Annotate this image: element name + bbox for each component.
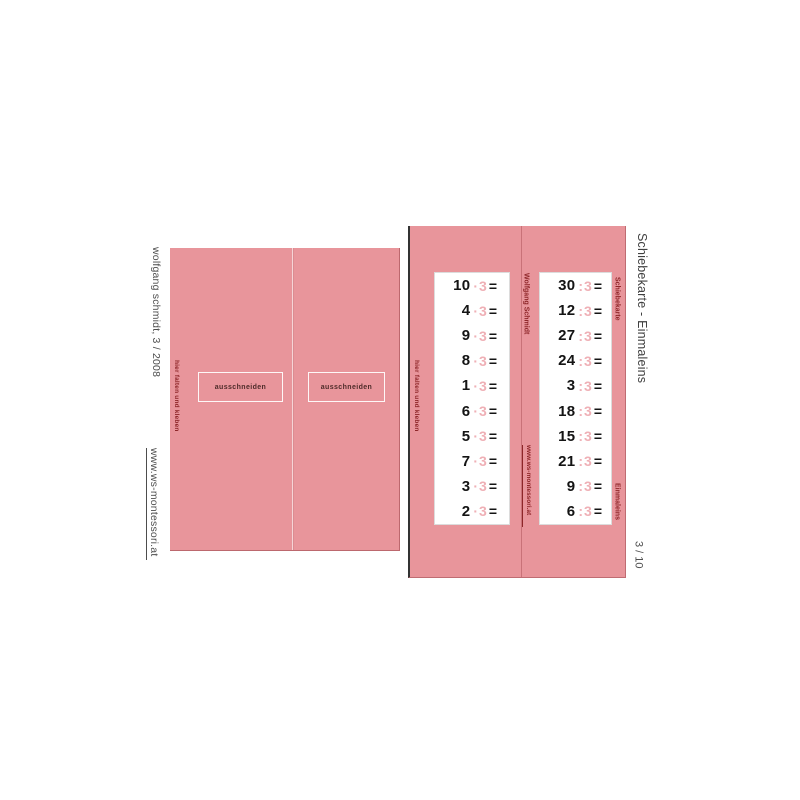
fold-line: [292, 248, 293, 550]
problem-row: 15:3=: [540, 424, 611, 449]
equals-sign: =: [594, 428, 602, 444]
operator-and-operand: ·3: [473, 278, 487, 294]
page-title: Schiebekarte - Einmaleins: [635, 233, 648, 413]
operator-and-operand: :3: [578, 403, 592, 419]
equals-sign: =: [489, 503, 497, 519]
problem-row: 9:3=: [540, 474, 611, 499]
equals-sign: =: [489, 278, 497, 294]
equals-sign: =: [489, 453, 497, 469]
multiplicand: 6: [462, 403, 471, 420]
operator-and-operand: ·3: [473, 428, 487, 444]
problem-row: 24:3=: [540, 348, 611, 373]
cut-out-box: ausschneiden: [198, 372, 283, 402]
problem-row: 27:3=: [540, 323, 611, 348]
multiplicand: 9: [462, 327, 471, 344]
author-credit: wolfgang schmidt, 3 / 2008: [150, 247, 161, 377]
cut-out-box: ausschneiden: [308, 372, 385, 402]
multiplicand: 2: [462, 503, 471, 520]
equals-sign: =: [594, 303, 602, 319]
equals-sign: =: [594, 503, 602, 519]
operator-and-operand: ·3: [473, 453, 487, 469]
equals-sign: =: [594, 378, 602, 394]
problem-row: 3:3=: [540, 373, 611, 398]
website-link: www.ws-montessori.at: [146, 448, 159, 560]
problem-row: 12:3=: [540, 298, 611, 323]
operator-and-operand: :3: [578, 428, 592, 444]
operator-and-operand: ·3: [473, 503, 487, 519]
operator-and-operand: ·3: [473, 353, 487, 369]
dividend: 3: [567, 377, 576, 394]
operator-and-operand: :3: [578, 378, 592, 394]
multiplication-column: 10·3=4·3=9·3=8·3=1·3=6·3=5·3=7·3=3·3=2·3…: [434, 272, 510, 525]
fold-panel-right: hier falten und kleben 10·3=4·3=9·3=8·3=…: [408, 226, 626, 578]
operator-and-operand: :3: [578, 278, 592, 294]
page-number: 3 / 10: [632, 541, 644, 575]
dividend: 27: [558, 327, 575, 344]
problem-row: 7·3=: [435, 449, 509, 474]
fold-panel-left: hier falten und kleben ausschneiden auss…: [170, 248, 400, 551]
equals-sign: =: [489, 353, 497, 369]
dividend: 18: [558, 403, 575, 420]
multiplicand: 3: [462, 478, 471, 495]
series-label: Schiebekarte: [613, 277, 620, 325]
equals-sign: =: [489, 403, 497, 419]
dividend: 9: [567, 478, 576, 495]
equals-sign: =: [594, 403, 602, 419]
operator-and-operand: :3: [578, 453, 592, 469]
problem-row: 30:3=: [540, 273, 611, 298]
problem-row: 8·3=: [435, 348, 509, 373]
dividend: 30: [558, 277, 575, 294]
equals-sign: =: [489, 428, 497, 444]
equals-sign: =: [594, 328, 602, 344]
problem-row: 2·3=: [435, 499, 509, 524]
cut-out-label: ausschneiden: [215, 384, 266, 391]
equals-sign: =: [489, 328, 497, 344]
scanned-worksheet-page: { "document": { "side_title": "Schiebeka…: [0, 0, 800, 800]
operator-and-operand: :3: [578, 478, 592, 494]
problem-row: 3·3=: [435, 474, 509, 499]
operator-and-operand: :3: [578, 328, 592, 344]
topic-label: Einmaleins: [613, 483, 620, 528]
problem-row: 4·3=: [435, 298, 509, 323]
problem-row: 18:3=: [540, 399, 611, 424]
multiplicand: 8: [462, 352, 471, 369]
equals-sign: =: [594, 478, 602, 494]
multiplicand: 1: [462, 377, 471, 394]
division-column: 30:3=12:3=27:3=24:3=3:3=18:3=15:3=21:3=9…: [539, 272, 612, 525]
operator-and-operand: :3: [578, 353, 592, 369]
problem-row: 6:3=: [540, 499, 611, 524]
dividend: 12: [558, 302, 575, 319]
fold-instruction-label: hier falten und kleben: [412, 360, 419, 444]
equals-sign: =: [594, 453, 602, 469]
operator-and-operand: ·3: [473, 478, 487, 494]
dividend: 15: [558, 428, 575, 445]
multiplicand: 10: [453, 277, 470, 294]
operator-and-operand: ·3: [473, 303, 487, 319]
problem-row: 9·3=: [435, 323, 509, 348]
operator-and-operand: ·3: [473, 378, 487, 394]
operator-and-operand: ·3: [473, 403, 487, 419]
problem-row: 5·3=: [435, 424, 509, 449]
cut-out-label: ausschneiden: [321, 384, 372, 391]
multiplicand: 5: [462, 428, 471, 445]
multiplicand: 4: [462, 302, 471, 319]
multiplicand: 7: [462, 453, 471, 470]
website-label: www.ws-montessori.at: [522, 445, 531, 527]
author-label: Wolfgang Schmidt: [522, 273, 529, 345]
equals-sign: =: [489, 303, 497, 319]
equals-sign: =: [594, 278, 602, 294]
operator-and-operand: :3: [578, 303, 592, 319]
equals-sign: =: [489, 478, 497, 494]
problem-row: 10·3=: [435, 273, 509, 298]
operator-and-operand: :3: [578, 503, 592, 519]
equals-sign: =: [594, 353, 602, 369]
problem-row: 21:3=: [540, 449, 611, 474]
problem-row: 6·3=: [435, 399, 509, 424]
problem-row: 1·3=: [435, 373, 509, 398]
dividend: 21: [558, 453, 575, 470]
dividend: 6: [567, 503, 576, 520]
fold-instruction-label: hier falten und kleben: [172, 360, 179, 444]
dividend: 24: [558, 352, 575, 369]
equals-sign: =: [489, 378, 497, 394]
operator-and-operand: ·3: [473, 328, 487, 344]
